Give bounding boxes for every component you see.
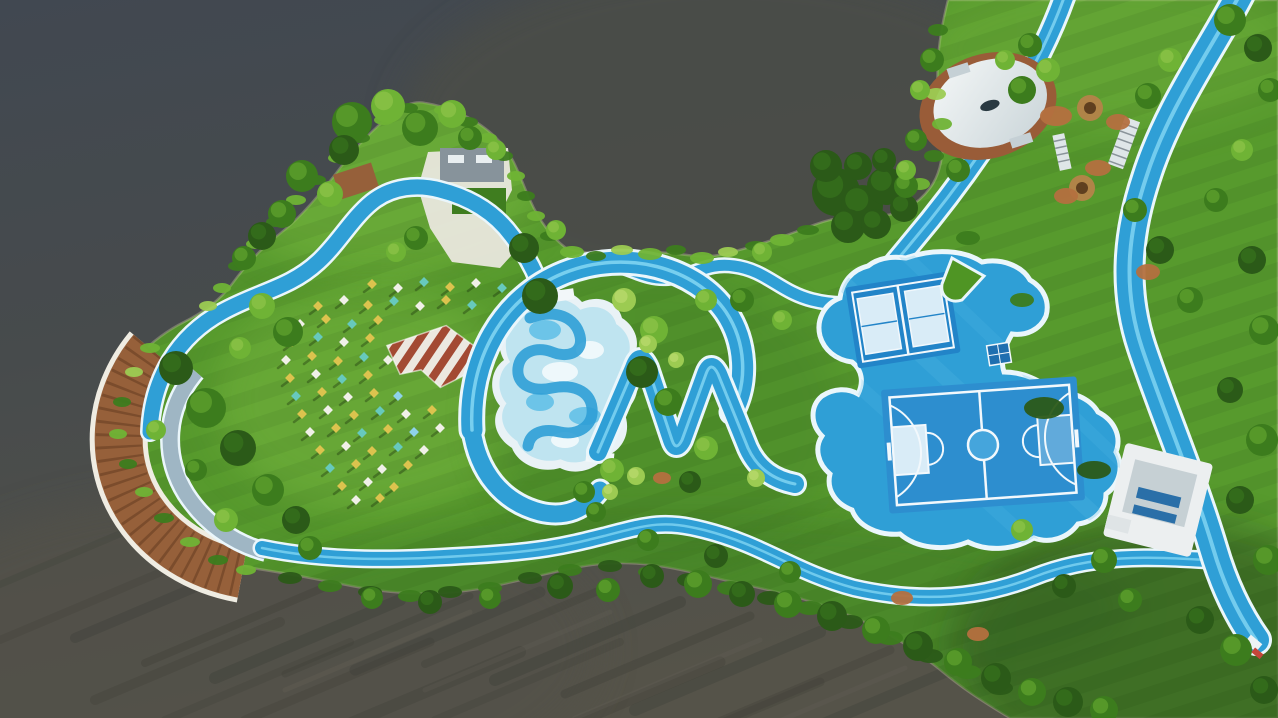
tree-canopy-highlight bbox=[1020, 35, 1033, 48]
tree-canopy-highlight bbox=[602, 460, 615, 473]
tree-canopy-highlight bbox=[187, 461, 199, 473]
tree-canopy-highlight bbox=[1054, 576, 1067, 589]
tree-canopy-highlight bbox=[332, 137, 349, 154]
shrub bbox=[586, 251, 606, 261]
tree-canopy-highlight bbox=[1056, 689, 1073, 706]
tree-canopy-highlight bbox=[754, 244, 765, 255]
tree-canopy-highlight bbox=[847, 154, 862, 169]
shrub bbox=[932, 118, 952, 130]
shrub bbox=[199, 301, 217, 311]
shrub bbox=[527, 211, 545, 221]
tree-canopy-highlight bbox=[460, 128, 473, 141]
tree-canopy-highlight bbox=[834, 212, 853, 231]
tree-canopy-highlight bbox=[687, 572, 702, 587]
shrub bbox=[666, 245, 686, 255]
tree-canopy-highlight bbox=[813, 152, 831, 170]
tree-canopy-highlight bbox=[777, 592, 792, 607]
tree-canopy-highlight bbox=[732, 583, 746, 597]
shrub bbox=[924, 150, 944, 162]
tree-canopy-highlight bbox=[874, 150, 887, 163]
tree-canopy-highlight bbox=[1038, 60, 1051, 73]
tree-canopy-highlight bbox=[749, 470, 759, 480]
tree-canopy-highlight bbox=[1253, 678, 1268, 693]
tree-canopy-highlight bbox=[234, 248, 247, 261]
shrub bbox=[1085, 160, 1111, 176]
tree-canopy-highlight bbox=[1229, 488, 1244, 503]
tree-canopy-highlight bbox=[984, 665, 1001, 682]
tree-canopy-highlight bbox=[1138, 85, 1152, 99]
tree-canopy-highlight bbox=[697, 291, 709, 303]
tree-canopy-highlight bbox=[629, 468, 639, 478]
shrub bbox=[113, 397, 131, 407]
tree-canopy-highlight bbox=[1094, 549, 1108, 563]
tree-canopy-highlight bbox=[231, 339, 243, 351]
tree-canopy-highlight bbox=[639, 531, 651, 543]
tree-canopy-highlight bbox=[1180, 289, 1194, 303]
tree-canopy-highlight bbox=[289, 162, 307, 180]
tree-canopy-highlight bbox=[1125, 200, 1138, 213]
tree-canopy-highlight bbox=[864, 211, 881, 228]
pool-swirl bbox=[529, 320, 561, 340]
tree-canopy-highlight bbox=[1249, 426, 1267, 444]
tree-canopy-highlight bbox=[190, 391, 212, 413]
tree-canopy-highlight bbox=[276, 319, 293, 336]
tree-canopy-highlight bbox=[670, 353, 679, 362]
scene-canvas bbox=[0, 0, 1278, 718]
tree-canopy-highlight bbox=[481, 589, 493, 601]
tree-canopy-highlight bbox=[255, 476, 273, 494]
tree-canopy-highlight bbox=[224, 433, 244, 453]
tree-canopy-highlight bbox=[598, 580, 611, 593]
tree-canopy-highlight bbox=[732, 290, 745, 303]
tree-canopy-highlight bbox=[548, 222, 559, 233]
shrub bbox=[135, 487, 153, 497]
shrub bbox=[1010, 293, 1034, 307]
tree-canopy-highlight bbox=[781, 563, 793, 575]
shrub bbox=[236, 565, 256, 575]
shrub bbox=[653, 472, 671, 484]
tree-canopy-highlight bbox=[1241, 248, 1256, 263]
tree-canopy-highlight bbox=[912, 82, 923, 93]
tree-canopy-highlight bbox=[1223, 636, 1241, 654]
tree-canopy-highlight bbox=[657, 390, 672, 405]
tree-canopy-highlight bbox=[845, 188, 868, 211]
shrub bbox=[213, 283, 231, 293]
tree-canopy-highlight bbox=[922, 50, 935, 63]
tree-canopy-highlight bbox=[1011, 78, 1026, 93]
tree-canopy-highlight bbox=[1093, 698, 1108, 713]
tree-canopy-highlight bbox=[1252, 317, 1269, 334]
tree-canopy-highlight bbox=[706, 546, 719, 559]
thatch-roof-center bbox=[1076, 182, 1088, 194]
shrub bbox=[154, 513, 174, 523]
shrub bbox=[967, 627, 989, 641]
tree-canopy-highlight bbox=[271, 202, 286, 217]
shrub bbox=[638, 248, 662, 260]
tree-canopy-highlight bbox=[1120, 590, 1133, 603]
tree-canopy-highlight bbox=[1206, 190, 1219, 203]
shrub bbox=[1054, 188, 1078, 204]
center-circle bbox=[967, 429, 999, 461]
tree-canopy-highlight bbox=[604, 485, 613, 494]
tree-canopy-highlight bbox=[148, 422, 159, 433]
tree-canopy-highlight bbox=[893, 196, 908, 211]
tree-canopy-highlight bbox=[550, 575, 564, 589]
shrub bbox=[598, 560, 622, 572]
key-left bbox=[892, 425, 929, 475]
tree-canopy-highlight bbox=[1220, 379, 1234, 393]
tree-canopy-highlight bbox=[252, 295, 266, 309]
tree-canopy-highlight bbox=[947, 650, 962, 665]
tree-canopy-highlight bbox=[820, 603, 837, 620]
shrub bbox=[278, 572, 302, 584]
tree-canopy-highlight bbox=[300, 538, 313, 551]
tree-canopy-highlight bbox=[774, 312, 785, 323]
shrub bbox=[690, 252, 714, 264]
thatch-roof-center bbox=[1084, 102, 1096, 114]
tree-canopy-highlight bbox=[162, 354, 181, 373]
tree-canopy-highlight bbox=[441, 102, 456, 117]
pool-foam bbox=[542, 362, 578, 382]
tree-canopy-highlight bbox=[1260, 80, 1273, 93]
shrub bbox=[891, 591, 913, 605]
tree-canopy-highlight bbox=[1233, 141, 1245, 153]
tree-canopy-highlight bbox=[948, 160, 961, 173]
shrub bbox=[180, 537, 200, 547]
shrub bbox=[928, 24, 948, 36]
tree-canopy-highlight bbox=[641, 336, 651, 346]
tree-canopy-highlight bbox=[420, 592, 433, 605]
shrub bbox=[1136, 264, 1160, 280]
tree-canopy-highlight bbox=[997, 52, 1008, 63]
tree-canopy-highlight bbox=[1149, 238, 1164, 253]
shrub bbox=[140, 343, 160, 353]
tree-canopy-highlight bbox=[575, 483, 587, 495]
tree-canopy-highlight bbox=[1217, 6, 1235, 24]
shrub bbox=[208, 555, 228, 565]
tree-canopy-highlight bbox=[374, 92, 393, 111]
tree-canopy-highlight bbox=[1247, 36, 1262, 51]
tree-canopy-highlight bbox=[512, 235, 529, 252]
tree-canopy-highlight bbox=[488, 142, 499, 153]
tree-canopy-highlight bbox=[1021, 680, 1036, 695]
aerial-photo-lakeside-park bbox=[0, 0, 1278, 718]
tree-canopy-highlight bbox=[907, 131, 919, 143]
shrub bbox=[109, 429, 127, 439]
tree-canopy-highlight bbox=[285, 508, 300, 523]
tree-canopy-highlight bbox=[406, 113, 426, 133]
basketball-court bbox=[881, 376, 1085, 513]
shrub bbox=[560, 246, 584, 258]
tree-canopy-highlight bbox=[363, 589, 375, 601]
shrub bbox=[718, 247, 738, 257]
shrub bbox=[611, 245, 633, 255]
tree-canopy-highlight bbox=[614, 290, 627, 303]
tree-canopy-highlight bbox=[898, 162, 909, 173]
shrub bbox=[318, 580, 342, 592]
shrub bbox=[119, 459, 137, 469]
tree-canopy-highlight bbox=[865, 618, 880, 633]
pool-swirl bbox=[526, 393, 554, 411]
tree-canopy-highlight bbox=[1013, 521, 1025, 533]
tree-canopy-highlight bbox=[388, 244, 399, 255]
shrub bbox=[518, 572, 542, 584]
shrub bbox=[797, 225, 819, 235]
tree-canopy-highlight bbox=[906, 633, 923, 650]
tree-canopy-highlight bbox=[643, 318, 658, 333]
tree-canopy-highlight bbox=[642, 566, 655, 579]
tree-canopy-highlight bbox=[336, 105, 358, 127]
shrub bbox=[438, 586, 462, 598]
tree-canopy-highlight bbox=[251, 224, 266, 239]
shrub bbox=[1106, 114, 1130, 130]
tree-canopy-highlight bbox=[871, 170, 892, 191]
tree-canopy-highlight bbox=[1256, 547, 1273, 564]
tree-canopy-highlight bbox=[588, 504, 599, 515]
lounge-chair bbox=[448, 155, 464, 163]
shrub bbox=[956, 231, 980, 245]
shrub bbox=[507, 171, 525, 181]
shrub bbox=[1077, 461, 1111, 479]
tree-canopy-highlight bbox=[406, 228, 419, 241]
tree-canopy-highlight bbox=[696, 438, 709, 451]
tree-canopy-highlight bbox=[1160, 50, 1173, 63]
tree-canopy-highlight bbox=[681, 473, 693, 485]
table-tennis-table bbox=[987, 342, 1012, 365]
tree-canopy-highlight bbox=[320, 183, 334, 197]
tree-canopy-highlight bbox=[216, 510, 229, 523]
shrub bbox=[517, 191, 535, 201]
tree-canopy-highlight bbox=[629, 358, 647, 376]
key-right bbox=[1037, 415, 1074, 465]
shrub bbox=[1024, 397, 1064, 419]
shrub bbox=[1040, 106, 1072, 126]
shrub bbox=[125, 367, 143, 377]
tree-canopy-highlight bbox=[526, 281, 546, 301]
tree-canopy-highlight bbox=[1189, 608, 1204, 623]
shrub bbox=[770, 234, 794, 246]
